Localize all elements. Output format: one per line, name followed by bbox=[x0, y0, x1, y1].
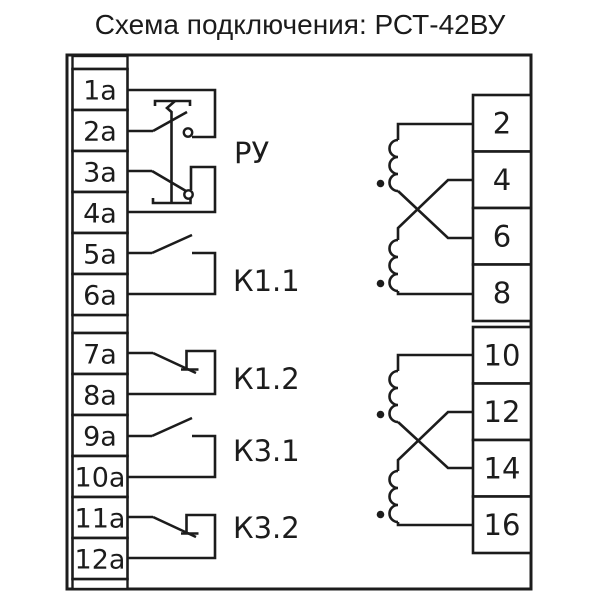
polarity-dot-icon bbox=[377, 280, 385, 288]
left-terminal-column: 1а 2а 3а 4а 5а 6а 7а 8а 9а 10а 11а 12а bbox=[73, 56, 128, 589]
terminal-label: 4 bbox=[493, 163, 511, 197]
label-k1-1: К1.1 bbox=[233, 264, 300, 298]
contact-k1-1 bbox=[127, 235, 215, 294]
left-column-empty-top bbox=[73, 56, 128, 69]
switch-blade-icon bbox=[153, 112, 187, 131]
terminal-label: 9а bbox=[83, 422, 117, 453]
terminal-label: 2 bbox=[493, 107, 511, 141]
terminal-label: 10а bbox=[75, 463, 126, 494]
switch-blade-icon bbox=[152, 418, 192, 436]
terminal-label: 12а bbox=[75, 545, 126, 576]
lower-transformer bbox=[377, 355, 473, 525]
terminal-label: 10 bbox=[484, 339, 521, 373]
wire-6a-loop bbox=[127, 253, 215, 294]
label-k3-1: К3.1 bbox=[233, 434, 300, 468]
schematic-canvas: Схема подключения: РСТ-42ВУ 1а 2а 3а 4а … bbox=[0, 0, 600, 600]
wire-10a-loop bbox=[127, 436, 215, 477]
contact-k3-1 bbox=[127, 418, 215, 477]
terminal-label: 6 bbox=[493, 220, 511, 254]
manual-control-switch bbox=[127, 90, 215, 212]
terminal-label: 1а bbox=[83, 76, 117, 107]
terminal-label: 8а bbox=[83, 381, 117, 412]
crossover-wire-from-4 bbox=[398, 180, 473, 240]
contact-circle-icon bbox=[184, 128, 192, 136]
crossover-wire-from-12 bbox=[398, 412, 473, 471]
terminal-label: 4а bbox=[83, 199, 117, 230]
left-column-empty-middle bbox=[73, 315, 128, 333]
contact-k1-2 bbox=[127, 351, 215, 394]
device-outline bbox=[67, 55, 531, 589]
terminal-label: 8 bbox=[493, 276, 511, 310]
wire-terminal-16 bbox=[398, 522, 473, 525]
terminal-label: 5а bbox=[83, 240, 117, 271]
wire-terminal-10 bbox=[398, 355, 473, 371]
winding-coil-icon bbox=[390, 371, 399, 422]
polarity-dot-icon bbox=[377, 411, 385, 419]
terminal-label: 11а bbox=[75, 504, 126, 535]
crossover-wire-to-6 bbox=[398, 191, 473, 238]
wire-12a-loop bbox=[127, 515, 215, 558]
winding-coil-icon bbox=[390, 471, 399, 522]
winding-coil-icon bbox=[390, 240, 399, 291]
left-column-empty-bottom bbox=[73, 579, 128, 589]
terminal-label: 6а bbox=[83, 281, 117, 312]
polarity-dot-icon bbox=[377, 511, 385, 519]
label-manual-switch: РУ bbox=[234, 136, 269, 170]
terminal-label: 16 bbox=[484, 508, 521, 542]
label-k1-2: К1.2 bbox=[233, 362, 300, 396]
switch-blade-icon bbox=[152, 171, 186, 191]
terminal-label: 14 bbox=[484, 452, 521, 486]
terminal-label: 3а bbox=[83, 158, 117, 189]
contact-circle-icon bbox=[184, 190, 192, 198]
wire-terminal-2 bbox=[398, 124, 473, 140]
wire-terminal-8 bbox=[398, 291, 473, 294]
terminal-label: 2а bbox=[83, 117, 117, 148]
winding-coil-icon bbox=[390, 140, 399, 191]
terminal-label: 7а bbox=[83, 340, 117, 371]
polarity-dot-icon bbox=[377, 180, 385, 188]
switch-shaft-icon bbox=[167, 101, 175, 203]
crossover-wire-to-14 bbox=[398, 422, 473, 468]
terminal-label: 12 bbox=[484, 395, 521, 429]
contact-k3-2 bbox=[127, 515, 215, 558]
upper-transformer bbox=[377, 124, 473, 294]
right-terminal-column: 2 4 6 8 10 12 14 16 bbox=[473, 95, 531, 553]
switch-blade-icon bbox=[152, 235, 192, 253]
label-k3-2: К3.2 bbox=[233, 511, 300, 545]
connection-diagram: Схема подключения: РСТ-42ВУ 1а 2а 3а 4а … bbox=[0, 0, 600, 600]
wire-8a-loop bbox=[127, 351, 215, 394]
diagram-title: Схема подключения: РСТ-42ВУ bbox=[95, 9, 506, 40]
